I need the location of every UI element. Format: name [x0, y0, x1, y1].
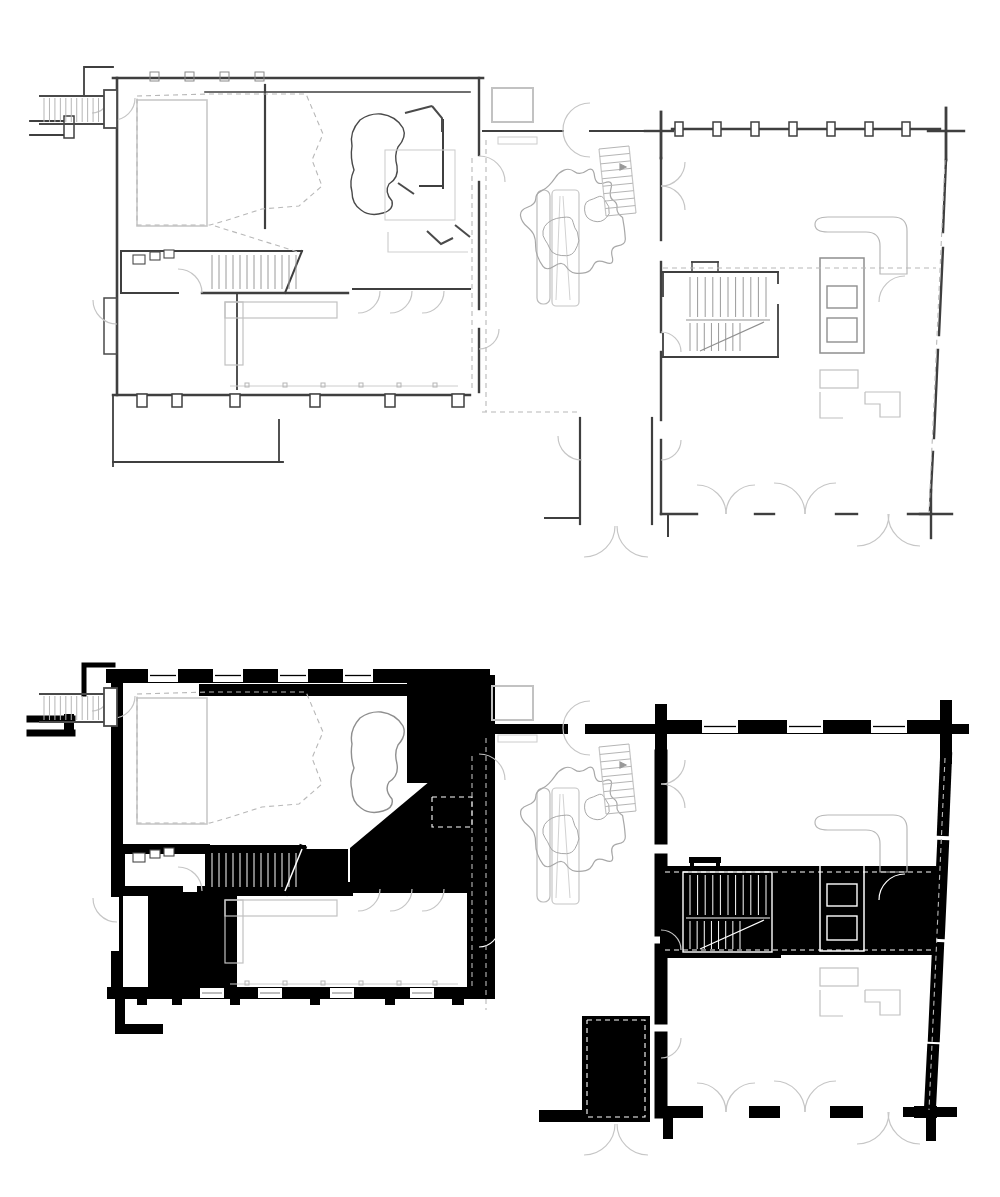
architectural-drawing-sheet	[0, 0, 1000, 1197]
sheet-background	[0, 0, 1000, 1197]
floor-plans-svg	[0, 0, 1000, 1197]
